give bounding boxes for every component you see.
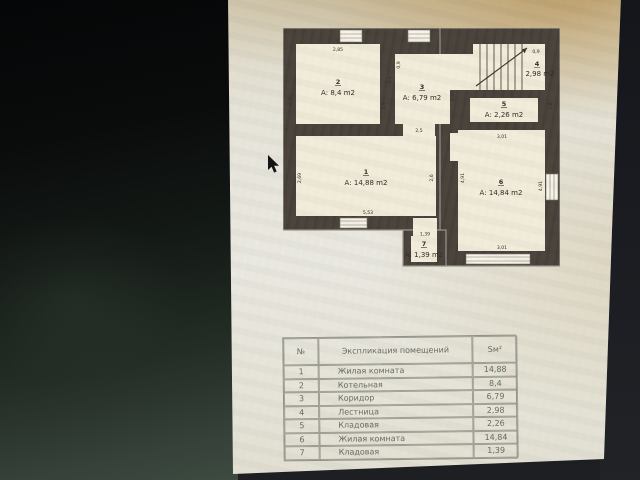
- dim-room6-top: 3,01: [497, 134, 507, 140]
- table-row-5-num: 5: [284, 419, 319, 433]
- dim-opening-1-3: 2,5: [415, 128, 422, 134]
- table-row-7-num: 7: [285, 446, 320, 460]
- room6-number: 6: [499, 178, 504, 186]
- dim-room1-bottom: 5,53: [363, 210, 373, 216]
- floor-plan: 1 А: 14,88 m2 2 А: 8,4 m2 3 А: 6,79 m2 4…: [283, 28, 560, 270]
- dim-room6-bottom: 3,01: [497, 245, 507, 251]
- table-row-3-num: 3: [284, 392, 319, 406]
- room2-number: 2: [336, 78, 341, 86]
- dim-room2-right: 2,9: [381, 102, 387, 109]
- dim-room6-right: 4,91: [538, 181, 544, 191]
- dim-room3-right: 2,84: [450, 91, 456, 101]
- room3-area: А: 6,79 m2: [403, 94, 441, 102]
- table-row-7-area: 1,39: [474, 444, 519, 458]
- dim-stairs-top: 0,9: [532, 49, 539, 55]
- table-row-3-area: 6,79: [473, 390, 518, 404]
- dim-room2-top: 2,85: [333, 47, 343, 53]
- dim-room7-top: 1,39: [420, 232, 430, 238]
- room2-area: А: 8,4 m2: [321, 89, 355, 97]
- room1-area: А: 14,88 m2: [345, 179, 388, 187]
- table-row-1-num: 1: [284, 365, 319, 379]
- explication-table: № Экспликация помещений Sм² 1 Жилая комн…: [282, 335, 517, 461]
- table-row-4-area: 2,98: [473, 403, 518, 417]
- dim-notch: 0,4: [387, 76, 393, 83]
- room4-number: 4: [535, 60, 540, 68]
- table-row-6-area: 14,84: [473, 430, 518, 444]
- dim-room6-left: 4,91: [460, 173, 466, 183]
- table-row-6-num: 6: [284, 432, 319, 446]
- monitor-photo: 1 А: 14,88 m2 2 А: 8,4 m2 3 А: 6,79 m2 4…: [0, 0, 640, 480]
- room5-number: 5: [502, 100, 507, 108]
- table-row-2-num: 2: [284, 378, 319, 392]
- table-row-2-area: 8,4: [473, 376, 518, 390]
- col-header-number: №: [283, 338, 318, 365]
- dim-room1-left: 2,69: [297, 173, 303, 183]
- room3-number: 3: [420, 83, 425, 91]
- monitor-dark-area-left: [0, 0, 238, 480]
- mouse-cursor-icon: [267, 155, 281, 174]
- table-row-5-area: 2,26: [473, 417, 518, 431]
- dim-room1-right: 2,6: [429, 174, 435, 181]
- dim-room2-left: 2,95: [287, 95, 293, 105]
- room7-number: 7: [422, 240, 427, 248]
- room6-area: А: 14,84 m2: [480, 189, 523, 197]
- table-row-7-name: Кладовая: [320, 444, 474, 459]
- room4-area: 2,98 m2: [525, 70, 554, 78]
- col-header-area: Sм²: [472, 336, 517, 364]
- room7-area: А: 1,39 m2: [405, 251, 443, 259]
- dim-room3-door: 0,9: [396, 61, 402, 68]
- table-row-4-num: 4: [284, 405, 319, 419]
- dim-room5-right: 1,8: [548, 102, 554, 109]
- table-row-1-area: 14,88: [473, 363, 518, 377]
- col-header-title: Экспликация помещений: [318, 336, 472, 365]
- room5-area: А: 2,26 m2: [485, 111, 523, 119]
- room1-number: 1: [364, 168, 369, 176]
